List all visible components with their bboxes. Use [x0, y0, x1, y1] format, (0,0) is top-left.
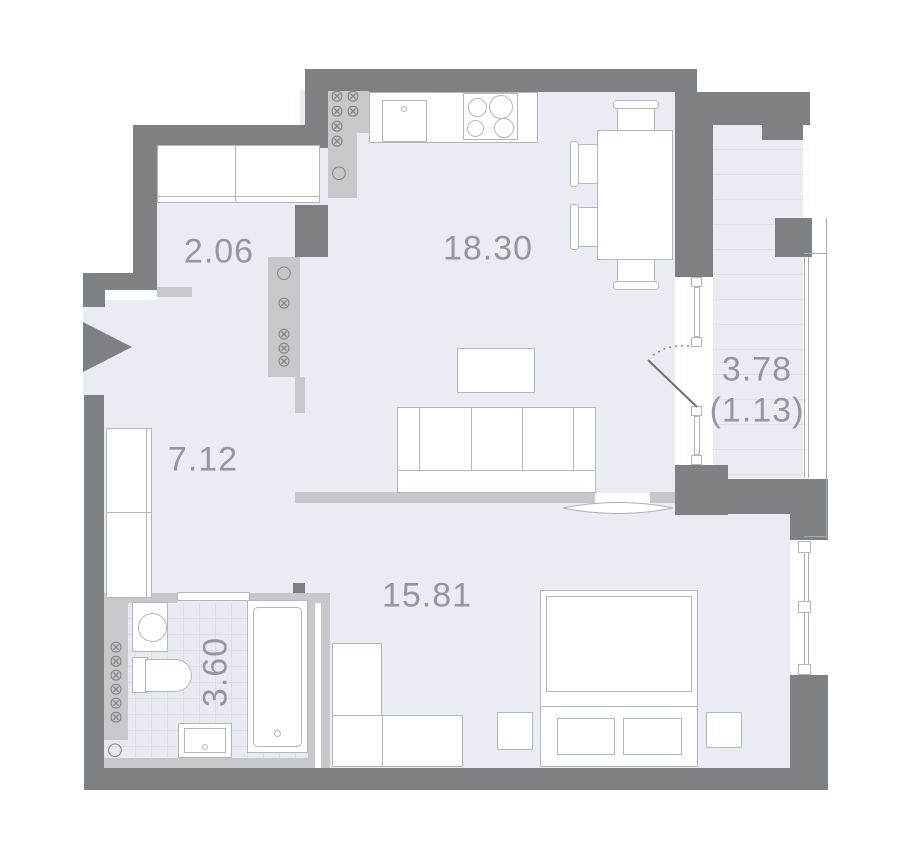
wall-top-right-band: [675, 92, 810, 125]
room-label-bathroom: 3.60: [197, 637, 236, 707]
vent-icon: ⊗: [277, 296, 291, 313]
balcony-door-window-lower: [694, 416, 700, 455]
toilet-bowl: [145, 659, 192, 692]
vent-icon: ⊗: [277, 354, 291, 371]
wall-left-upper: [133, 125, 157, 273]
balcony-door-jamb-3: [691, 406, 702, 416]
entry-door-arrow-icon: [83, 322, 132, 372]
sofa: [397, 407, 596, 493]
floor-plan: ⊗ ⊗ ⊗ ⊗ ⊗ ⊗ ○ ○ ⊗ ⊗ ⊗ ⊗ ⊗ ⊗ ⊗ ⊗ ⊗ ⊗ ○ 2.…: [0, 0, 900, 864]
closet-cabinets: [157, 145, 320, 203]
bathroom-sink-drain: [202, 744, 208, 750]
hallway-wardrobe-divider: [107, 512, 151, 513]
wall-bathroom-right-gap: [315, 603, 321, 768]
hallway-wardrobe-edge: [146, 429, 147, 597]
balcony-glazing-bottom-connector: [804, 536, 826, 537]
duct-circle-icon: ○: [331, 164, 347, 182]
vent-icon: ⊗: [109, 710, 123, 727]
bathtub-drain: [274, 730, 281, 737]
wall-bathroom-nub: [293, 583, 305, 593]
sofa-cushion-divider-1: [471, 408, 472, 470]
stove-burner-1: [468, 98, 487, 117]
wall-bathroom-bottom: [104, 758, 312, 768]
room-label-kitchen-living: 18.30: [443, 230, 533, 269]
sofa-armrest-left: [419, 408, 420, 470]
bathtub-basin: [253, 607, 302, 747]
threshold-entry: [157, 287, 192, 297]
wall-top-main: [305, 69, 697, 92]
room-label-hallway: 7.12: [168, 441, 238, 480]
stove-burner-3: [467, 120, 484, 137]
bathroom-door-leaf: [177, 592, 250, 601]
bedroom-wardrobe-divider: [382, 716, 383, 766]
bed-blanket: [546, 596, 692, 692]
balcony-glazing-top-connector: [804, 253, 826, 254]
sofa-backrest-line: [398, 470, 595, 471]
balcony-glazing-inner: [804, 257, 809, 478]
dining-table: [597, 130, 673, 260]
bedroom-window-cap-bottom: [798, 664, 811, 675]
partition-end-piece: [650, 492, 675, 503]
nightstand-right: [706, 712, 742, 748]
duct-circle-icon: ○: [107, 741, 123, 759]
stove-burner-2: [489, 95, 513, 119]
duct-circle-icon: ○: [276, 264, 292, 282]
sofa-armrest-right: [573, 408, 574, 470]
bedroom-wardrobe-wide: [332, 715, 463, 767]
kitchen-sink-faucet: [401, 106, 407, 112]
bed-pillow-right: [623, 718, 682, 755]
wall-right-bedroom-upper: [790, 479, 828, 540]
shaft-hallway-tail: [295, 377, 305, 413]
balcony-glazing-outer: [826, 218, 827, 538]
wall-living-bedroom-corner: [675, 465, 728, 515]
room-label-balcony-secondary: (1.13): [710, 392, 805, 431]
balcony-door-window-upper: [694, 287, 700, 337]
vent-icon: ⊗: [330, 134, 344, 151]
sofa-cushion-divider-2: [522, 408, 523, 470]
bed-pillow-left: [557, 718, 615, 755]
nightstand-left: [497, 712, 533, 750]
room-label-balcony: 3.78: [722, 351, 792, 390]
washing-machine-drum: [138, 613, 167, 642]
wall-entry-foot: [83, 273, 157, 290]
bedroom-wardrobe-tall: [332, 643, 382, 718]
room-label-wardrobe-niche: 2.06: [184, 233, 254, 272]
bed-headboard-line: [541, 706, 697, 707]
closet-cabinet-rail: [158, 196, 319, 197]
balcony-door-jamb-4: [691, 455, 702, 465]
stove-burner-4: [494, 118, 514, 138]
wall-left-lower: [84, 395, 104, 768]
balcony-door-jamb-2: [691, 337, 702, 347]
wall-right-bedroom-lower: [790, 673, 828, 768]
wall-balcony-step-block: [775, 218, 812, 257]
wall-entry-stub: [83, 290, 105, 307]
partition-living-bedroom: [295, 492, 595, 503]
room-label-bedroom: 15.81: [382, 577, 472, 616]
vent-icon: ⊗: [346, 104, 360, 121]
wall-bottom: [84, 768, 828, 790]
dining-chair-bottom-back: [613, 281, 659, 290]
wall-balcony-top-notch: [762, 125, 803, 140]
wall-closet-kitchen: [295, 205, 328, 257]
closet-cabinet-divider: [235, 146, 236, 202]
bedroom-window-cap-middle: [798, 601, 811, 613]
bedroom-window-cap-top: [798, 541, 811, 553]
coffee-table: [457, 348, 535, 393]
balcony-door-jamb-1: [691, 277, 702, 287]
